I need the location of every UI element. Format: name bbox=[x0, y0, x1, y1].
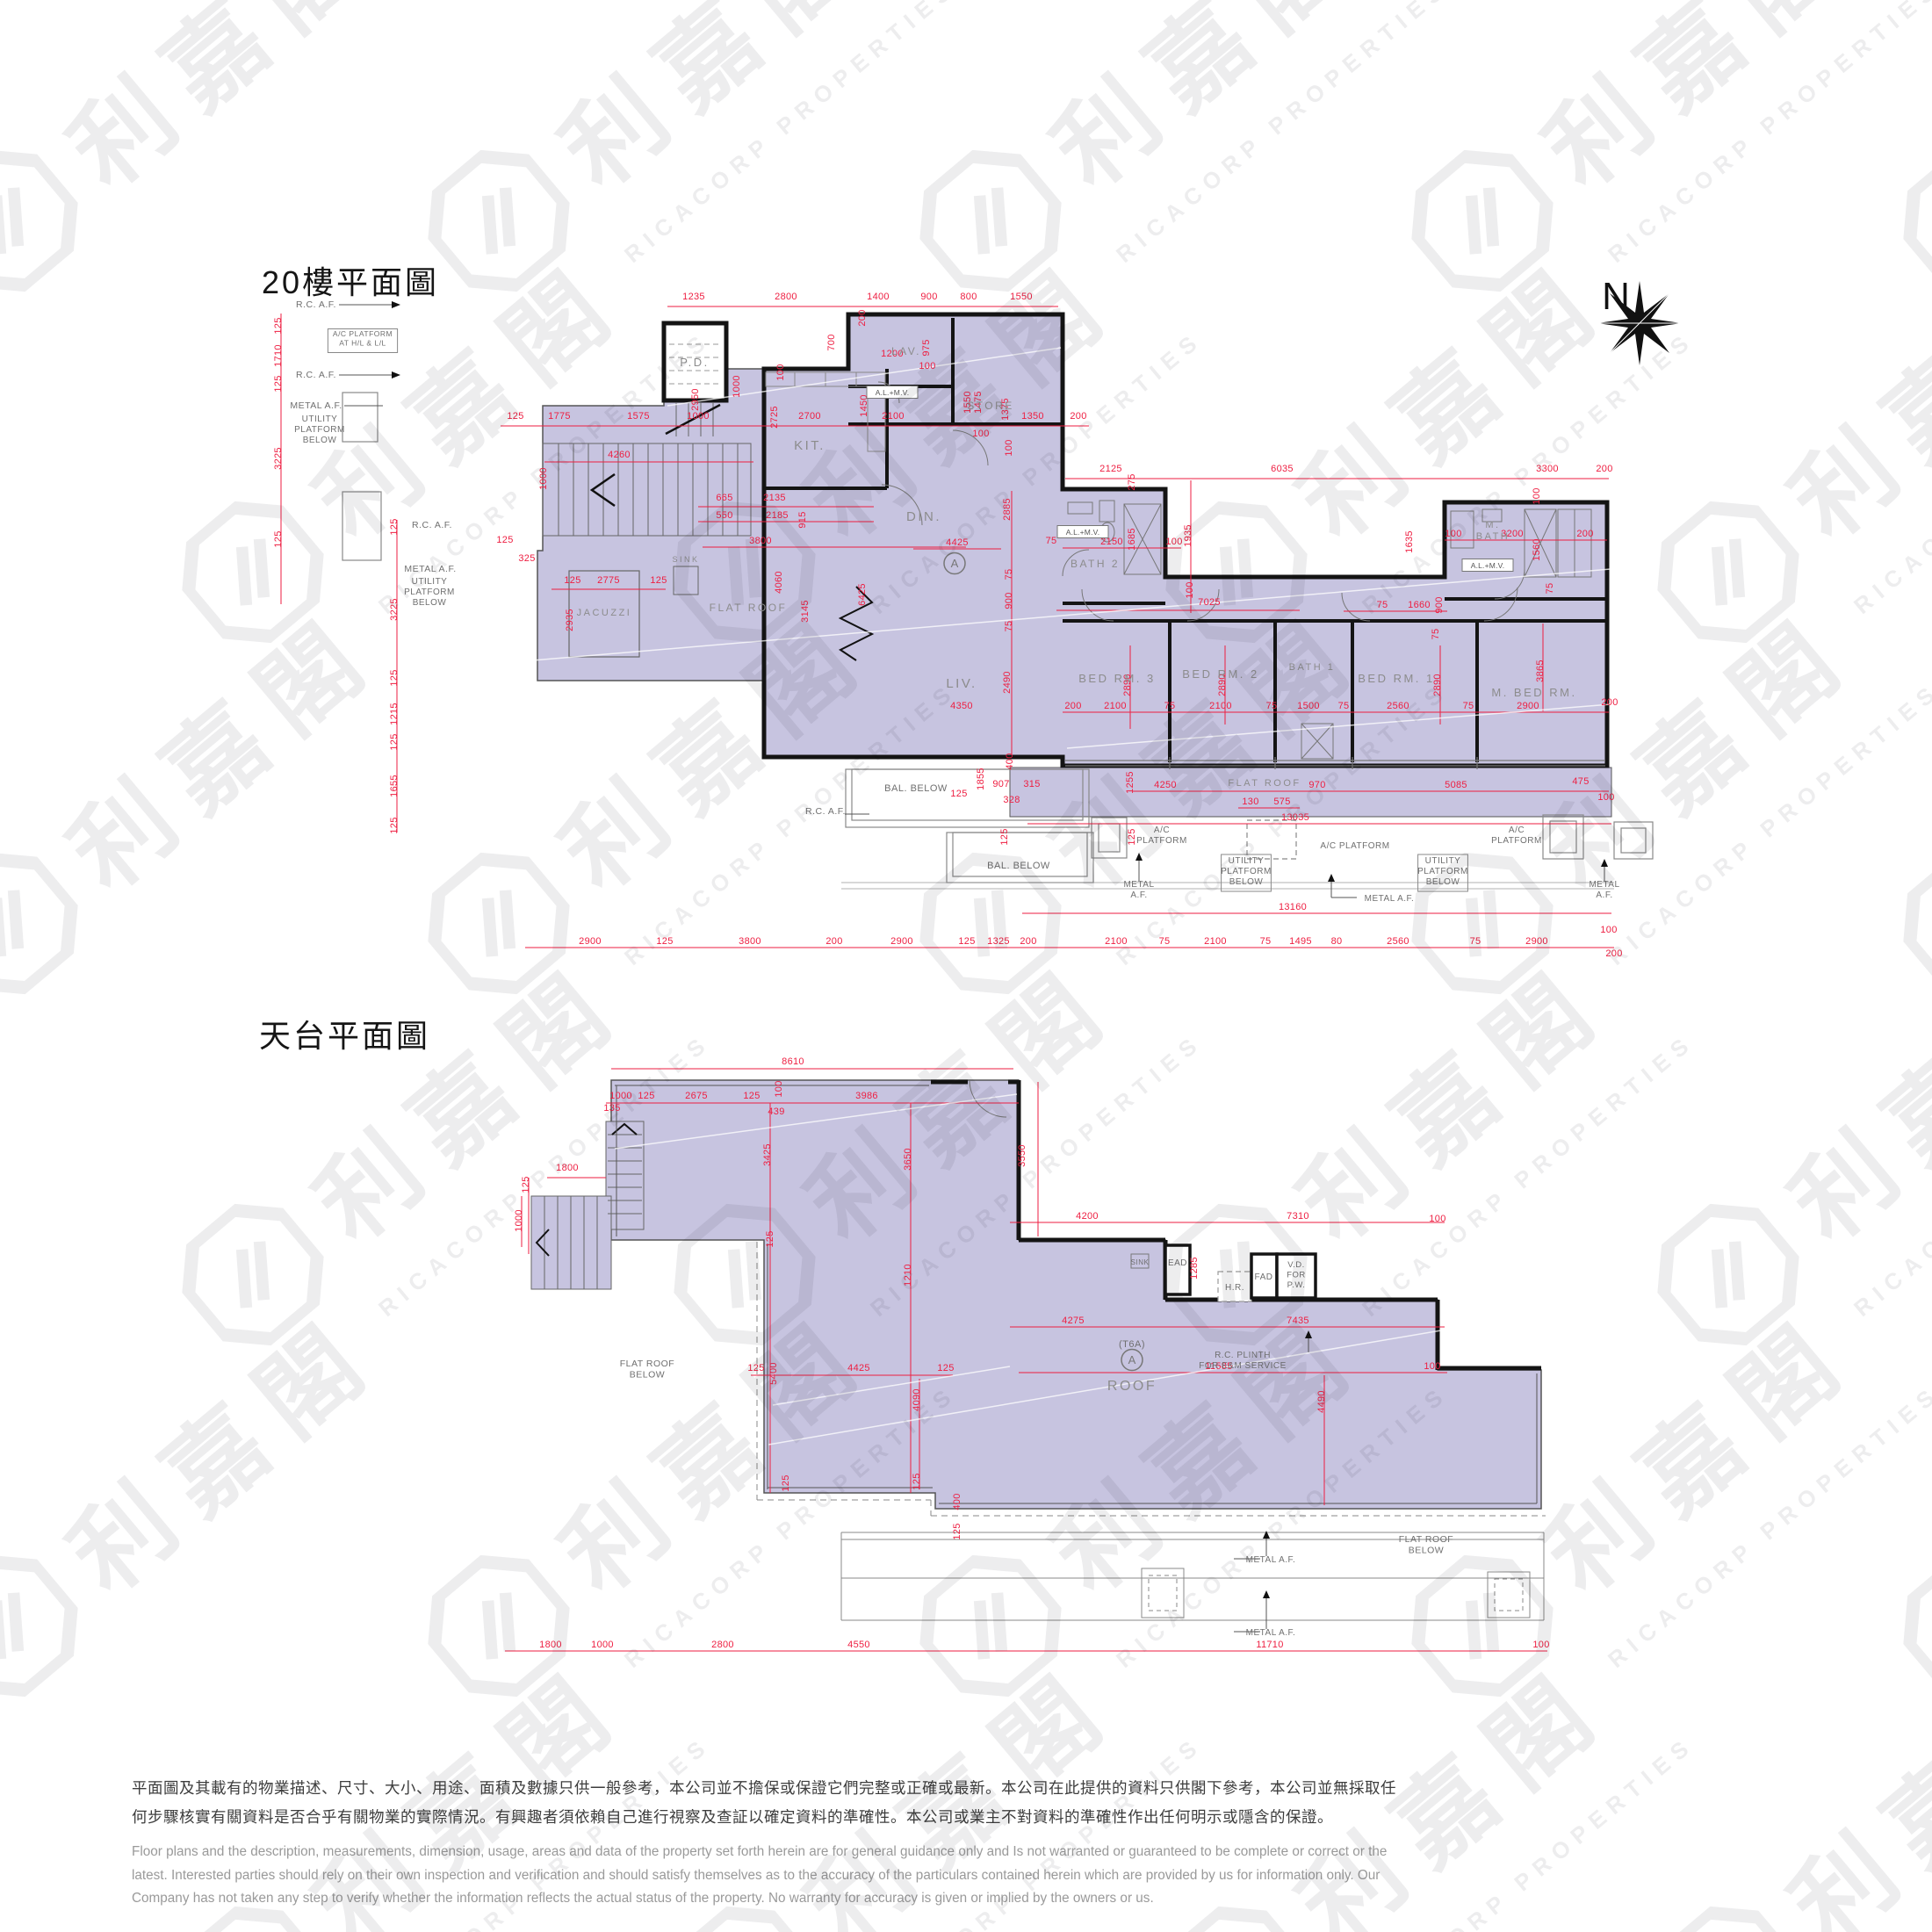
room-label: LIV. bbox=[946, 676, 977, 691]
al-mv-label: A.L.+M.V. bbox=[876, 388, 910, 397]
room-label: FLAT ROOF bbox=[710, 602, 788, 614]
dim-label: 125 bbox=[389, 817, 400, 833]
dim-label: 2885 bbox=[1002, 498, 1013, 521]
room-label: STORE bbox=[967, 400, 1014, 412]
dim-label: 100 bbox=[1004, 439, 1014, 456]
dim-label: 75 bbox=[1004, 621, 1014, 632]
note-label: UTILITYPLATFORMBELOW bbox=[404, 577, 455, 608]
dim-label: 75 bbox=[1260, 936, 1272, 947]
dim-label: 4090 bbox=[912, 1388, 922, 1411]
dim-label: 5085 bbox=[1445, 780, 1467, 790]
flat-roof-strip bbox=[1010, 768, 1611, 817]
dim-label: 75 bbox=[1377, 600, 1388, 610]
dim-label: 2100 bbox=[1204, 936, 1227, 947]
dim-label: 2900 bbox=[890, 936, 913, 947]
dim-label: 1400 bbox=[867, 292, 890, 302]
dim-label: 4550 bbox=[847, 1640, 870, 1650]
dim-label: 1800 bbox=[556, 1163, 579, 1173]
dim-label: 125 bbox=[389, 518, 400, 535]
note-label: FAD bbox=[1255, 1272, 1273, 1282]
dim-label: 100 bbox=[1597, 792, 1614, 803]
room-label: BATH 2 bbox=[1071, 558, 1120, 570]
room-label: ROOF bbox=[1107, 1379, 1157, 1394]
dim-label: 125 bbox=[521, 1176, 531, 1193]
dim-label: 6425 bbox=[857, 583, 868, 606]
dim-label: 200 bbox=[1064, 701, 1081, 711]
dim-label: 3300 bbox=[1536, 464, 1559, 474]
dim-label: 3800 bbox=[739, 936, 761, 947]
dim-label: 100 bbox=[972, 429, 989, 439]
room-label: SINK bbox=[672, 555, 699, 564]
room-label: JACUZZI bbox=[577, 608, 632, 618]
dim-label: 1495 bbox=[1289, 936, 1312, 947]
dim-label: 1325 bbox=[987, 936, 1010, 947]
note-label: (T6A) bbox=[1119, 1339, 1145, 1350]
room-label: DIN. bbox=[906, 509, 941, 524]
dim-label: 400 bbox=[952, 1493, 962, 1510]
dim-label: 4275 bbox=[1062, 1316, 1085, 1326]
dim-label: 1635 bbox=[1404, 530, 1415, 553]
dim-label: 130 bbox=[1242, 797, 1258, 807]
dim-label: 125 bbox=[937, 1363, 954, 1373]
metal-af-lines bbox=[841, 883, 1614, 889]
dim-label: 125 bbox=[999, 828, 1010, 845]
dim-label: 2185 bbox=[766, 510, 789, 521]
floor-plan-title: 20樓平面圖 bbox=[262, 257, 439, 303]
dim-label: 100 bbox=[919, 361, 935, 371]
dim-label: 2935 bbox=[565, 609, 575, 631]
floor-plan-sheet: N 12352800140090080015507002001200975100… bbox=[0, 0, 1932, 1932]
dim-label: 1000 bbox=[687, 411, 710, 422]
room-label: KIT. bbox=[794, 438, 825, 453]
dim-label: 1685 bbox=[1127, 528, 1137, 551]
dim-label: 1000 bbox=[538, 467, 549, 490]
dim-label: 5400 bbox=[768, 1362, 779, 1385]
dim-label: 2100 bbox=[1209, 701, 1232, 711]
dim-label: 4350 bbox=[950, 701, 973, 711]
dim-label: 1255 bbox=[1125, 771, 1135, 794]
dim-label: 325 bbox=[518, 553, 535, 564]
note-label: FLAT ROOFBELOW bbox=[1399, 1534, 1453, 1556]
dim-label: 100 bbox=[1424, 1361, 1440, 1372]
note-label: R.C. A.F. bbox=[296, 370, 336, 380]
dim-label: 100 bbox=[1185, 581, 1195, 598]
dim-label: 2800 bbox=[775, 292, 797, 302]
dim-label: 475 bbox=[1572, 776, 1589, 787]
note-label: EAD bbox=[1168, 1258, 1187, 1268]
room-label: P.D. bbox=[680, 356, 710, 369]
dim-label: 2900 bbox=[1525, 936, 1548, 947]
dim-label: 4425 bbox=[847, 1363, 870, 1373]
note-label: METAL A.F. bbox=[404, 564, 456, 574]
dim-label: 1775 bbox=[548, 411, 571, 422]
dim-label: 665 bbox=[716, 493, 732, 503]
al-mv-label: A.L.+M.V. bbox=[1471, 561, 1505, 570]
dim-label: 800 bbox=[960, 292, 977, 302]
dim-label: 3145 bbox=[800, 600, 811, 623]
dim-label: 2725 bbox=[769, 406, 780, 429]
disclaimer: 平面圖及其載有的物業描述、尺寸、大小、用途、面積及數據只供一般參考，本公司並不擔… bbox=[132, 1774, 1840, 1911]
dim-label: 125 bbox=[389, 669, 400, 686]
dim-label: 125 bbox=[507, 411, 523, 422]
disclaimer-en-line3: Company has not taken any step to verify… bbox=[132, 1891, 1154, 1906]
note-label: FLAT ROOFBELOW bbox=[620, 1359, 674, 1381]
roof-plan-title: 天台平面圖 bbox=[259, 1011, 430, 1056]
dim-label: 2675 bbox=[685, 1091, 708, 1101]
roof-outline bbox=[611, 1080, 1541, 1509]
dim-label: 900 bbox=[920, 292, 937, 302]
dim-label: 2775 bbox=[597, 575, 620, 586]
note-label: METAL A.F. bbox=[1365, 894, 1415, 904]
dim-label: 75 bbox=[1470, 936, 1481, 947]
dim-label: 2560 bbox=[1387, 936, 1409, 947]
dim-label: 2100 bbox=[1105, 936, 1128, 947]
dim-label: 2100 bbox=[882, 411, 905, 422]
dim-label: 575 bbox=[1273, 797, 1290, 807]
note-label: UTILITYPLATFORMBELOW bbox=[294, 415, 345, 445]
dim-label: 75 bbox=[1431, 629, 1441, 640]
dim-label: 4060 bbox=[774, 571, 784, 594]
dim-label: 2800 bbox=[711, 1640, 734, 1650]
disclaimer-en-line2: latest. Interested parties should rely o… bbox=[132, 1868, 1380, 1883]
note-label: A/C PLATFORMAT H/L & L/L bbox=[333, 329, 393, 348]
dim-label: 2125 bbox=[1099, 464, 1122, 474]
dim-label: 125 bbox=[781, 1474, 791, 1491]
dim-label: 1655 bbox=[389, 775, 400, 797]
dim-label: 4260 bbox=[608, 450, 631, 460]
dim-label: 75 bbox=[1164, 701, 1176, 711]
dim-label: 125 bbox=[958, 936, 975, 947]
dim-label: 75 bbox=[1463, 701, 1474, 711]
dim-label: 75 bbox=[1266, 701, 1278, 711]
dim-label: 1000 bbox=[609, 1091, 632, 1101]
dim-label: 80 bbox=[1331, 936, 1343, 947]
dim-label: 125 bbox=[496, 535, 513, 545]
dim-label: 3800 bbox=[749, 536, 772, 546]
dim-label: 1855 bbox=[976, 768, 986, 790]
dim-label: 1935 bbox=[1183, 524, 1193, 547]
dim-label: 4200 bbox=[1076, 1211, 1099, 1222]
dim-label: 439 bbox=[768, 1107, 784, 1117]
dim-label: 975 bbox=[921, 339, 932, 356]
dim-label: 970 bbox=[1308, 780, 1325, 790]
dim-label: 75 bbox=[1046, 536, 1057, 546]
dim-label: 900 bbox=[1434, 596, 1445, 613]
dim-label: 400 bbox=[1005, 753, 1015, 769]
dim-label: 1560 bbox=[1532, 538, 1542, 561]
dim-label: 125 bbox=[273, 317, 284, 334]
dim-label: 2900 bbox=[1517, 701, 1539, 711]
dim-label: 125 bbox=[273, 530, 284, 547]
dim-label: 1800 bbox=[539, 1640, 562, 1650]
dim-label: 7025 bbox=[1198, 597, 1221, 608]
dim-label: 100 bbox=[1600, 925, 1617, 935]
dim-label: 200 bbox=[1576, 529, 1593, 539]
note-label: R.C. A.F. bbox=[412, 520, 452, 530]
dim-label: 1350 bbox=[1021, 411, 1044, 422]
room-label: LAV. bbox=[891, 345, 921, 357]
note-label: SINK bbox=[1131, 1258, 1150, 1266]
dim-label: 3425 bbox=[762, 1143, 773, 1166]
dim-label: 915 bbox=[797, 511, 808, 528]
dim-label: 1660 bbox=[1408, 600, 1431, 610]
note-label: R.C. A.F. bbox=[805, 806, 846, 817]
room-label: BED RM. 3 bbox=[1078, 672, 1156, 685]
dim-label: 3986 bbox=[855, 1091, 878, 1101]
dim-label: 1285 bbox=[1189, 1257, 1200, 1280]
dim-label: 100 bbox=[774, 1080, 784, 1097]
dim-label: 8610 bbox=[782, 1056, 804, 1067]
dim-label: 2560 bbox=[1387, 701, 1409, 711]
dim-label: 7435 bbox=[1287, 1316, 1309, 1326]
dim-label: 200 bbox=[1070, 411, 1086, 422]
dim-label: 3865 bbox=[1535, 660, 1546, 682]
dim-label: 2700 bbox=[798, 411, 821, 422]
room-label: BATH 1 bbox=[1289, 662, 1336, 673]
dim-label: 3650 bbox=[903, 1148, 913, 1171]
section-marker: A bbox=[951, 557, 959, 570]
dim-label: 1575 bbox=[627, 411, 650, 422]
dim-label: 2900 bbox=[579, 936, 602, 947]
dim-label: 275 bbox=[1127, 473, 1137, 490]
room-label: BED RM. 2 bbox=[1182, 667, 1259, 681]
section-marker: A bbox=[1128, 1353, 1136, 1366]
dim-label: 125 bbox=[638, 1091, 654, 1101]
dim-label: 6035 bbox=[1271, 464, 1294, 474]
dim-label: 2950 bbox=[690, 388, 701, 411]
dim-label: 1235 bbox=[682, 292, 705, 302]
note-label: METAL A.F. bbox=[1246, 1628, 1296, 1638]
dim-label: 1210 bbox=[903, 1264, 913, 1287]
note-label: V.D.FORP.W. bbox=[1287, 1260, 1306, 1290]
dim-label: 125 bbox=[564, 575, 580, 586]
dim-label: 200 bbox=[1596, 464, 1612, 474]
dim-label: 4250 bbox=[1154, 780, 1177, 790]
dim-label: 1710 bbox=[273, 344, 284, 367]
dim-label: 125 bbox=[950, 789, 967, 799]
dim-label: 328 bbox=[1003, 795, 1020, 805]
note-label: A/CPLATFORM bbox=[1491, 825, 1542, 846]
dim-label: 75 bbox=[1159, 936, 1171, 947]
dim-label: 3225 bbox=[389, 598, 400, 621]
note-label: METAL A.F. bbox=[290, 400, 342, 411]
dim-label: 75 bbox=[1004, 569, 1014, 580]
disclaimer-zh-line2: 何步驟核實有關資料是否合乎有關物業的實際情況。有興趣者須依賴自己進行視察及查証以… bbox=[132, 1808, 1333, 1826]
dim-label: 13160 bbox=[1279, 902, 1307, 912]
dim-label: 100 bbox=[1532, 1640, 1549, 1650]
dim-label: 1000 bbox=[591, 1640, 614, 1650]
room-label: BED RM. 1 bbox=[1358, 672, 1435, 685]
dim-label: 900 bbox=[1004, 592, 1014, 609]
dim-label: 125 bbox=[743, 1091, 760, 1101]
dim-label: 700 bbox=[826, 334, 837, 350]
room-label: FLAT ROOF bbox=[1228, 778, 1301, 789]
dim-label: 315 bbox=[1023, 779, 1040, 789]
dim-label: 100 bbox=[1445, 529, 1461, 539]
dim-label: 1550 bbox=[1010, 292, 1033, 302]
note-label: A/CPLATFORM bbox=[1136, 825, 1187, 846]
dim-label: 100 bbox=[1429, 1214, 1445, 1224]
dim-label: 907 bbox=[992, 779, 1009, 789]
dim-label: 1000 bbox=[732, 375, 742, 398]
dim-label: 13035 bbox=[1281, 812, 1309, 823]
dim-label: 11710 bbox=[1256, 1640, 1283, 1650]
note-label: METALA.F. bbox=[1589, 880, 1619, 900]
dim-label: 200 bbox=[1601, 697, 1618, 708]
dim-label: 200 bbox=[825, 936, 842, 947]
dim-label: 100 bbox=[775, 364, 786, 380]
dim-label: 2100 bbox=[1104, 701, 1127, 711]
roof-metal-leaders bbox=[1234, 1539, 1266, 1632]
dim-label: 125 bbox=[952, 1523, 962, 1539]
dim-label: 1215 bbox=[389, 703, 400, 725]
dim-label: 75 bbox=[1545, 583, 1555, 595]
note-label: METALA.F. bbox=[1123, 880, 1154, 900]
note-label: A/C PLATFORM bbox=[1320, 841, 1389, 851]
note-label: BAL. BELOW bbox=[884, 783, 948, 794]
room-label: M. BED RM. bbox=[1491, 686, 1576, 699]
dim-label: 200 bbox=[857, 309, 868, 326]
flat-roof-wing bbox=[537, 369, 764, 681]
dim-label: 100 bbox=[1532, 487, 1542, 504]
dim-label: 200 bbox=[1605, 948, 1622, 959]
dim-label: 125 bbox=[912, 1473, 922, 1489]
dim-label: 125 bbox=[765, 1230, 775, 1247]
dim-label: 550 bbox=[716, 510, 732, 521]
dim-label: 3550 bbox=[1017, 1144, 1027, 1167]
dim-label: 125 bbox=[650, 575, 667, 586]
dim-label: 1000 bbox=[514, 1209, 524, 1232]
dim-label: 125 bbox=[389, 733, 400, 750]
dim-label: 1500 bbox=[1297, 701, 1320, 711]
dim-label: 125 bbox=[656, 936, 673, 947]
dim-label: 100 bbox=[1165, 537, 1182, 547]
dim-label: 125 bbox=[273, 375, 284, 392]
north-arrow: N bbox=[1597, 275, 1682, 365]
dim-label: 75 bbox=[1338, 701, 1350, 711]
note-label: BAL. BELOW bbox=[987, 861, 1050, 871]
note-label: H.R. bbox=[1225, 1283, 1244, 1293]
dim-label: 4425 bbox=[946, 537, 969, 548]
disclaimer-en-line1: Floor plans and the description, measure… bbox=[132, 1844, 1387, 1859]
dim-label: 7310 bbox=[1287, 1211, 1309, 1222]
dim-label: 200 bbox=[1020, 936, 1036, 947]
dim-label: 125 bbox=[747, 1363, 764, 1373]
al-mv-label: A.L.+M.V. bbox=[1066, 528, 1100, 537]
dim-label: 3225 bbox=[273, 447, 284, 470]
dim-label: 2490 bbox=[1002, 671, 1013, 694]
dim-label: 135 bbox=[603, 1103, 620, 1114]
note-label: METAL A.F. bbox=[1246, 1555, 1296, 1565]
disclaimer-zh-line1: 平面圖及其載有的物業描述、尺寸、大小、用途、面積及數據只供一般參考，本公司並不擔… bbox=[132, 1779, 1396, 1797]
dim-label: 4490 bbox=[1316, 1390, 1327, 1413]
dim-label: 2135 bbox=[763, 493, 786, 503]
